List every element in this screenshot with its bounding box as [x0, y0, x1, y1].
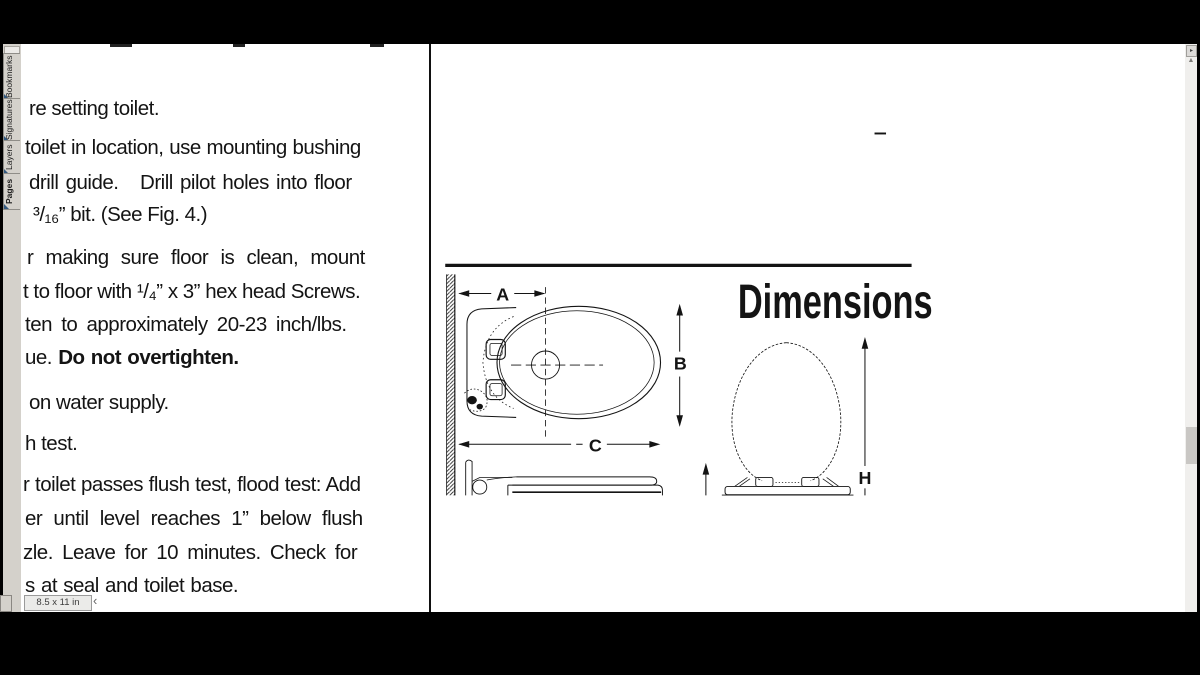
document-text-line: re setting toilet. [29, 97, 159, 121]
dimension-a: A [459, 285, 544, 305]
letterbox-left [0, 44, 3, 612]
dimension-partial-arrow [703, 464, 709, 495]
sidebar-tab-pages[interactable]: Pages [3, 173, 20, 210]
document-text-line: toilet in location, use mounting bushing [25, 136, 361, 160]
text-segment: zle. Leave for 10 minutes. Check for [23, 541, 357, 564]
document-page: re setting toilet.toilet in location, us… [21, 44, 1197, 612]
scroll-up-icon[interactable]: ▲ [1185, 57, 1197, 64]
document-text-line: ue. Do not overtighten. [25, 346, 239, 370]
hinge-cap-right [802, 477, 819, 486]
dimension-label-a: A [496, 285, 509, 305]
text-segment: ³/₁₆” bit. (See Fig. 4.) [33, 203, 207, 226]
bolt-dot [467, 396, 477, 404]
text-segment: re setting toilet. [29, 97, 159, 120]
document-text-line: zle. Leave for 10 minutes. Check for [23, 541, 357, 565]
text-segment: Do not overtighten. [58, 346, 238, 369]
document-text-line: r toilet passes flush test, flood test: … [23, 473, 361, 497]
dimension-b: B [674, 305, 687, 426]
tab-label: Bookmarks [4, 55, 14, 98]
document-text-line: drill guide. Drill pilot holes into floo… [29, 171, 352, 195]
pdf-viewer-window: { "app": { "page_size_indicator": "8.5 x… [0, 0, 1200, 675]
diagram-title: Dimensions [738, 275, 933, 329]
scroll-left-icon[interactable]: ‹ [93, 593, 97, 608]
tab-label: Pages [4, 179, 14, 204]
toilet-top-view [464, 287, 660, 438]
vertical-scrollbar[interactable]: ▸ ▲ [1185, 44, 1197, 612]
text-segment: h test. [25, 432, 77, 455]
document-text-line: on water supply. [29, 391, 169, 415]
dimension-label-b: B [674, 354, 687, 374]
text-segment: ten to approximately 20-23 inch/lbs. [25, 313, 347, 336]
text-segment: drill guide. Drill pilot holes into floo… [29, 171, 352, 194]
text-segment: r making sure floor is clean, mount [27, 246, 365, 269]
text-segment: s at seal and toilet base. [25, 574, 238, 597]
text-segment: r toilet passes flush test, flood test: … [23, 473, 361, 496]
document-text-line: ³/₁₆” bit. (See Fig. 4.) [33, 203, 207, 227]
bolt-dot [477, 404, 483, 410]
sidebar-tab-signatures[interactable]: Signatures [3, 98, 20, 142]
scrollbar-corner-icon[interactable]: ▸ [1186, 45, 1197, 57]
tab-notch-icon [4, 204, 9, 209]
text-segment: on water supply. [29, 391, 169, 414]
dimension-c: C [459, 435, 659, 455]
scrollbar-thumb[interactable] [1186, 427, 1197, 464]
navigation-tab-strip: Bookmarks Signatures Layers Pages [3, 44, 22, 612]
wall-hatch [447, 274, 455, 495]
sidebar-tab-bookmarks[interactable]: Bookmarks [3, 53, 20, 100]
tab-label: Signatures [4, 100, 14, 141]
letterbox-top [0, 0, 1200, 44]
dimension-h: H [858, 338, 871, 495]
text-segment: toilet in location, use mounting bushing [25, 136, 361, 159]
instruction-text-column: re setting toilet.toilet in location, us… [21, 44, 429, 612]
dimension-label-c: C [589, 435, 602, 455]
dimension-label-h: H [858, 468, 871, 488]
toilet-front-view [722, 343, 854, 495]
statusbar-corner-box [0, 595, 12, 612]
letterbox-bottom [0, 612, 1200, 675]
document-text-line: t to floor with ¹/₄” x 3” hex head Screw… [23, 280, 360, 304]
text-segment: er until level reaches 1” below flush [25, 507, 363, 530]
page-size-indicator: 8.5 x 11 in [24, 595, 92, 611]
toilet-side-view [466, 460, 663, 495]
sidebar-tab-layers[interactable]: Layers [3, 140, 20, 175]
tab-label: Layers [4, 145, 14, 171]
document-text-line: r making sure floor is clean, mount [27, 246, 365, 270]
seat-base [725, 486, 850, 494]
document-text-line: h test. [25, 432, 77, 456]
document-text-line: er until level reaches 1” below flush [25, 507, 363, 531]
document-text-line: ten to approximately 20-23 inch/lbs. [25, 313, 347, 337]
text-segment: t to floor with ¹/₄” x 3” hex head Screw… [23, 280, 360, 303]
dimensions-diagram: A B [428, 44, 1185, 612]
text-segment: ue. [25, 346, 58, 369]
